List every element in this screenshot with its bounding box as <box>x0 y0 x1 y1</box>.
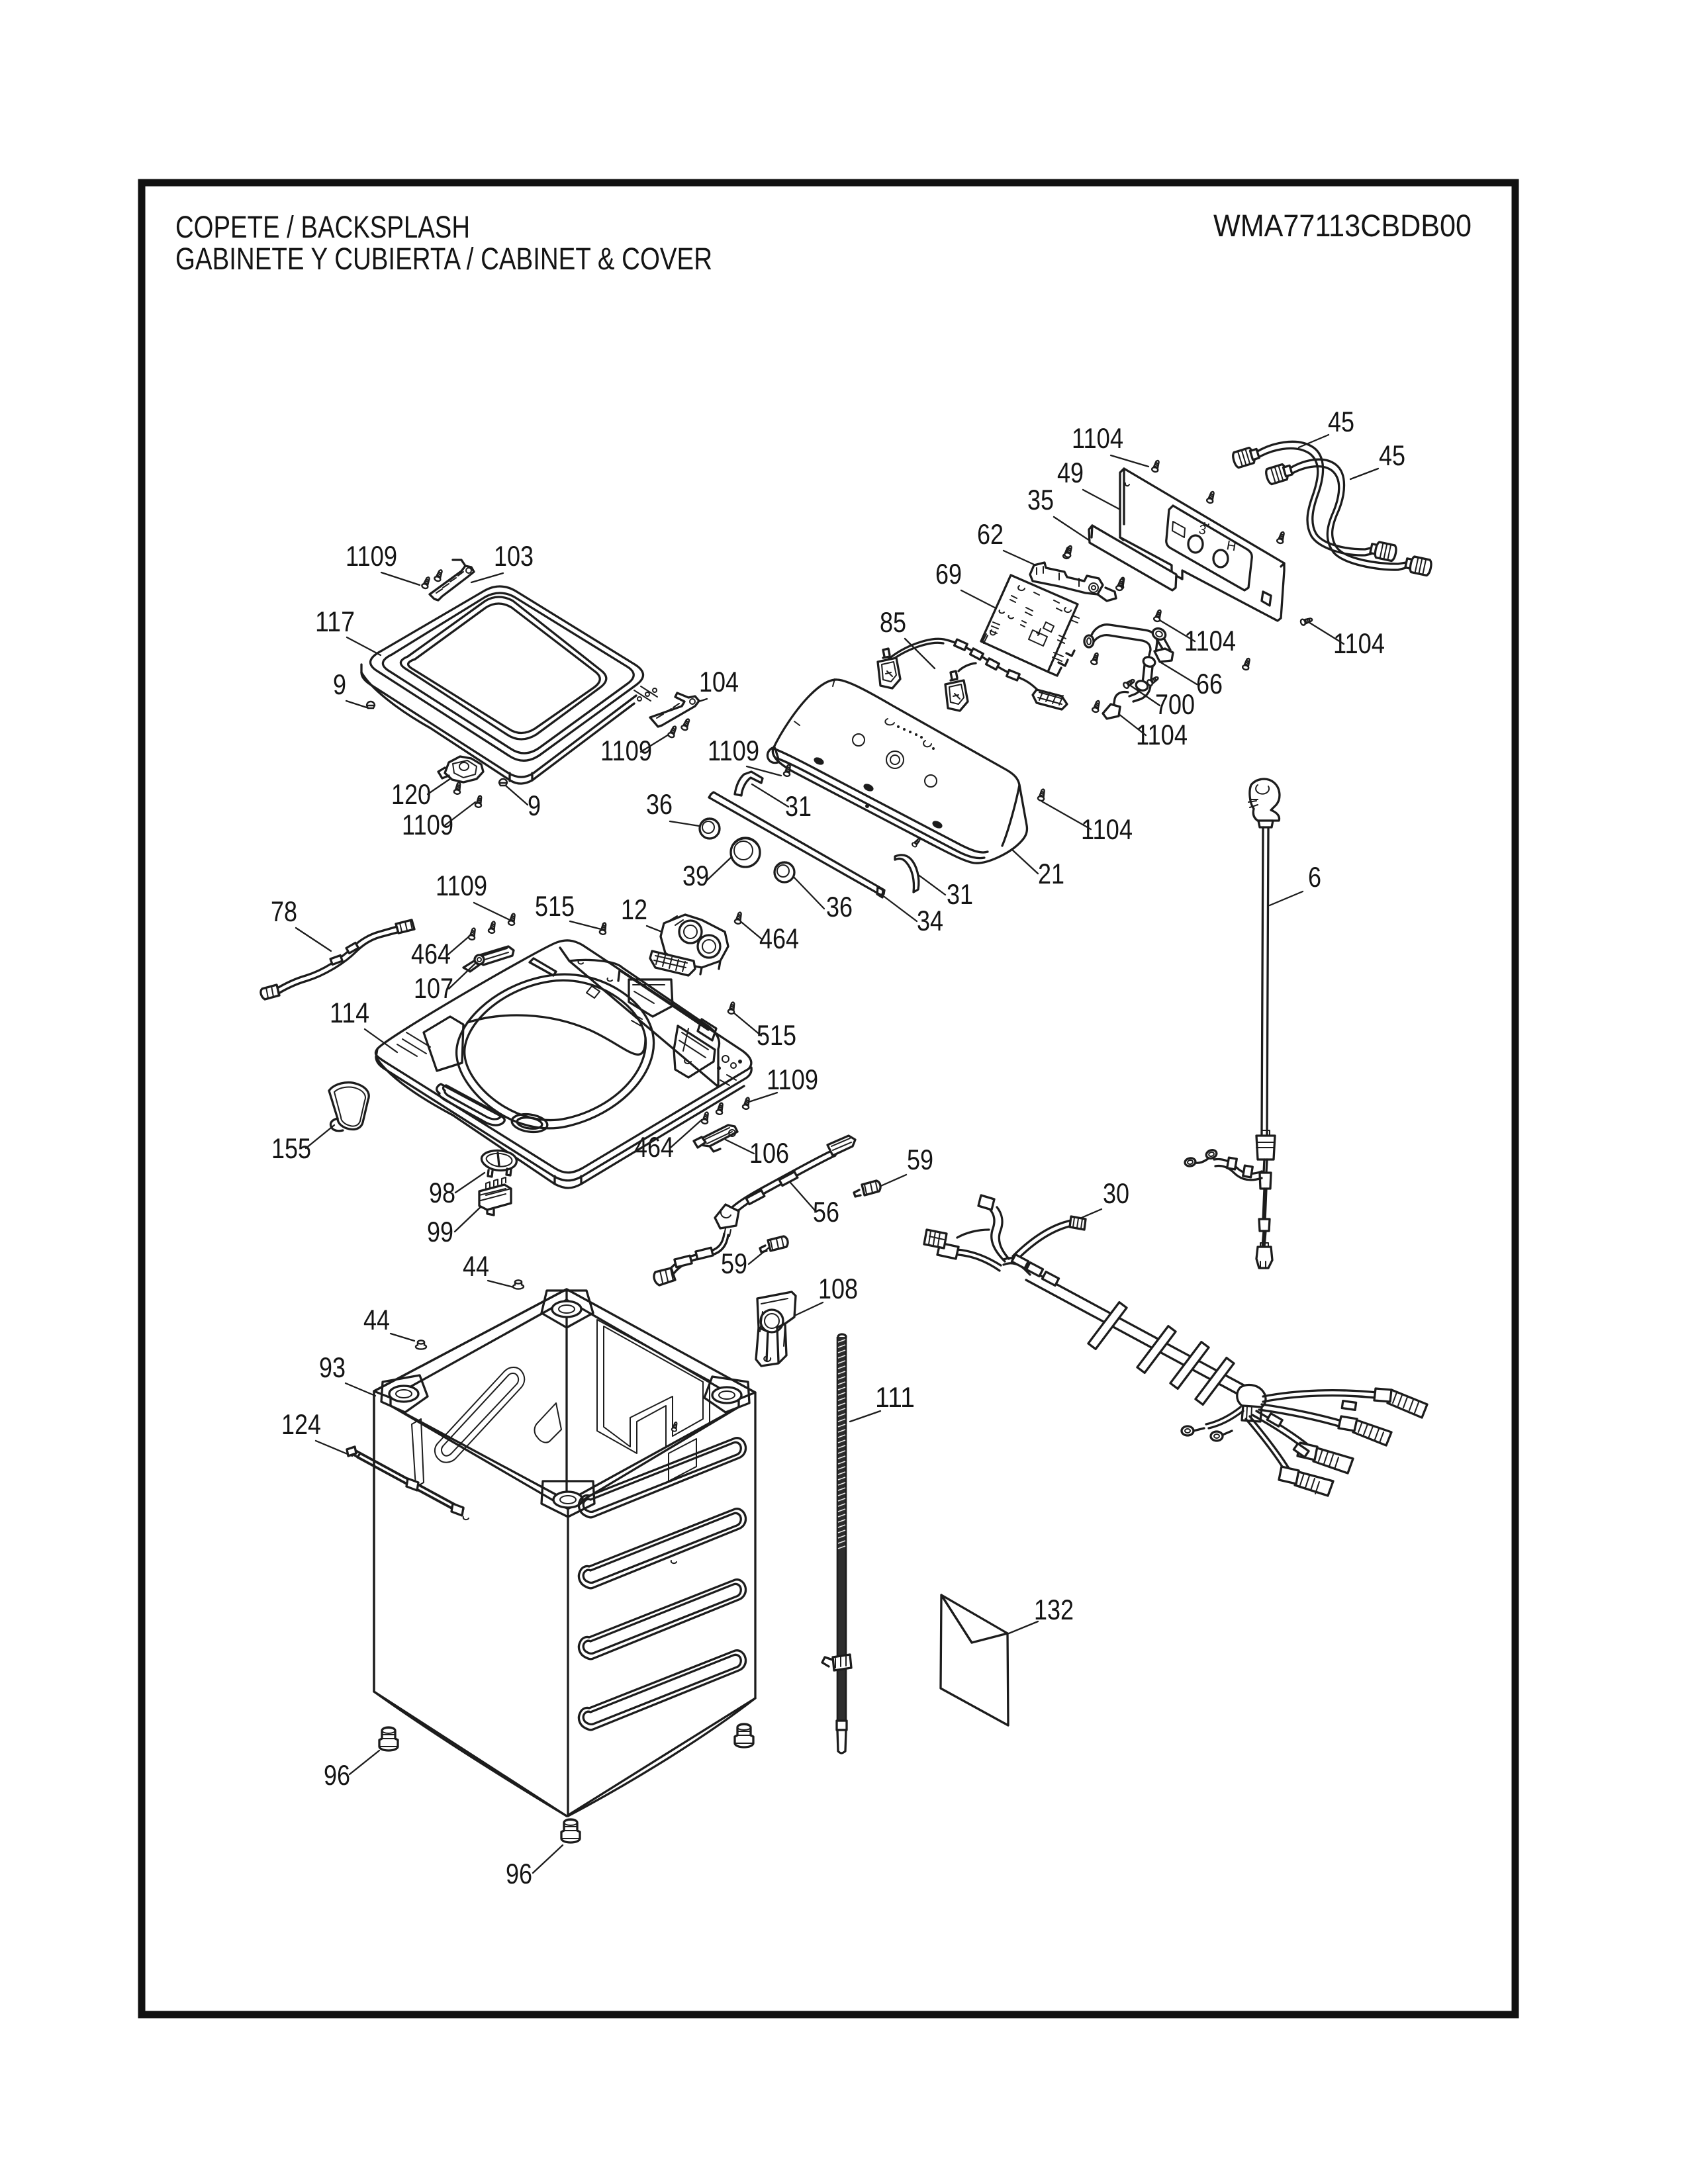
svg-text:31: 31 <box>947 879 973 911</box>
svg-text:9: 9 <box>333 669 346 701</box>
svg-text:59: 59 <box>721 1248 747 1280</box>
svg-text:34: 34 <box>917 905 943 937</box>
svg-text:1104: 1104 <box>1072 423 1123 455</box>
svg-text:39: 39 <box>682 860 709 892</box>
svg-text:120: 120 <box>391 779 431 811</box>
svg-text:56: 56 <box>813 1197 839 1228</box>
svg-text:44: 44 <box>363 1304 390 1336</box>
svg-text:124: 124 <box>281 1409 321 1441</box>
svg-text:9: 9 <box>528 790 541 822</box>
svg-text:36: 36 <box>646 789 673 821</box>
svg-text:1109: 1109 <box>600 735 652 767</box>
svg-text:104: 104 <box>699 666 739 698</box>
svg-text:6: 6 <box>1308 862 1321 893</box>
svg-text:45: 45 <box>1328 406 1354 438</box>
svg-text:515: 515 <box>535 891 575 923</box>
svg-text:78: 78 <box>271 896 297 928</box>
svg-text:1109: 1109 <box>767 1064 818 1096</box>
svg-text:98: 98 <box>429 1177 455 1209</box>
svg-text:114: 114 <box>330 997 369 1029</box>
svg-text:COPETE / BACKSPLASH: COPETE / BACKSPLASH <box>175 209 470 244</box>
svg-text:700: 700 <box>1155 689 1195 721</box>
svg-text:1109: 1109 <box>346 541 397 572</box>
svg-text:99: 99 <box>427 1216 453 1248</box>
svg-text:1104: 1104 <box>1081 814 1133 846</box>
svg-text:108: 108 <box>818 1273 858 1305</box>
svg-text:35: 35 <box>1027 484 1054 516</box>
svg-text:62: 62 <box>977 519 1004 551</box>
svg-text:30: 30 <box>1103 1178 1129 1210</box>
svg-text:515: 515 <box>757 1020 796 1052</box>
svg-text:12: 12 <box>621 894 647 926</box>
svg-text:117: 117 <box>315 606 355 638</box>
svg-text:107: 107 <box>414 973 453 1005</box>
svg-text:69: 69 <box>935 559 962 590</box>
svg-text:44: 44 <box>463 1251 489 1283</box>
svg-text:85: 85 <box>880 607 906 639</box>
svg-text:49: 49 <box>1057 457 1084 489</box>
svg-text:464: 464 <box>411 938 451 970</box>
svg-text:66: 66 <box>1196 668 1223 700</box>
svg-text:GABINETE Y CUBIERTA / CABINET: GABINETE Y CUBIERTA / CABINET & COVER <box>175 241 712 276</box>
svg-text:1104: 1104 <box>1136 719 1188 751</box>
svg-text:36: 36 <box>826 891 853 923</box>
svg-text:103: 103 <box>494 541 534 572</box>
svg-text:21: 21 <box>1038 858 1064 890</box>
svg-text:45: 45 <box>1379 440 1405 472</box>
svg-text:1104: 1104 <box>1184 625 1236 657</box>
svg-text:1104: 1104 <box>1333 628 1385 660</box>
svg-text:111: 111 <box>875 1382 915 1414</box>
svg-text:WMA77113CBDB00: WMA77113CBDB00 <box>1213 208 1472 243</box>
svg-text:96: 96 <box>506 1858 532 1890</box>
svg-text:106: 106 <box>749 1138 789 1169</box>
svg-text:59: 59 <box>907 1144 933 1176</box>
svg-text:93: 93 <box>319 1352 346 1384</box>
svg-text:96: 96 <box>324 1760 350 1792</box>
svg-text:132: 132 <box>1034 1594 1074 1626</box>
svg-text:464: 464 <box>759 923 799 955</box>
svg-text:1109: 1109 <box>708 735 759 767</box>
svg-text:155: 155 <box>271 1133 311 1165</box>
svg-text:1109: 1109 <box>436 870 487 902</box>
